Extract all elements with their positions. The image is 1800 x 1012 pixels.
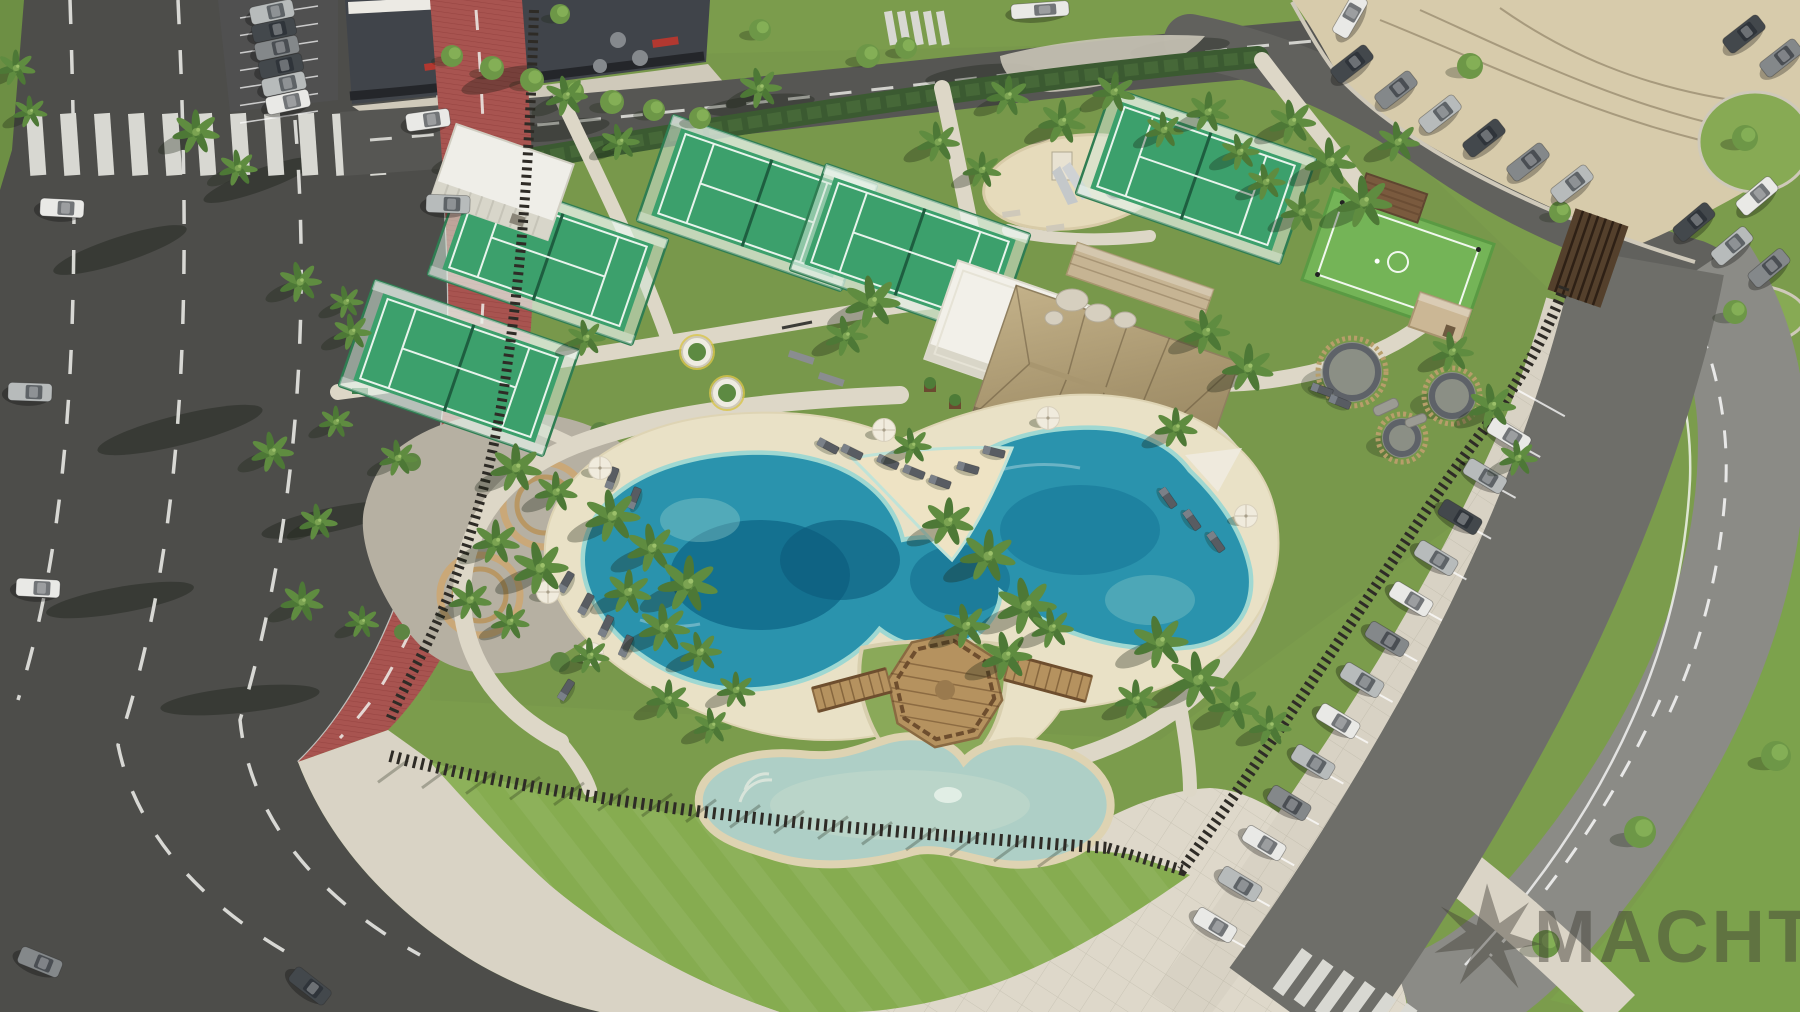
inlet-foam — [934, 787, 962, 803]
watermark-text: MACHT — [1534, 895, 1800, 978]
aerial-photo: MACHT — [0, 0, 1800, 1012]
aerial-render-stage: MACHT — [0, 0, 1800, 1012]
